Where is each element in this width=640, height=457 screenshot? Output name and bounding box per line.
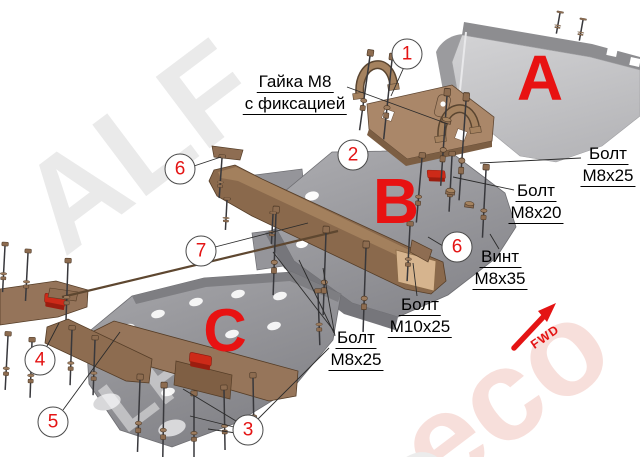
label-bolt-m8x20-line1: Болт [515,181,557,202]
label-bolt-m8x25-bottom-line2: М8х25 [328,350,383,371]
callout-6b: 6 [442,232,473,263]
callout-5: 5 [38,407,69,438]
label-nut-m8-line2: с фиксацией [243,94,347,115]
label-nut-m8: Гайка М8 с фиксацией [243,72,347,116]
diagram-stage: ALF eco co [0,0,640,457]
callout-1: 1 [392,39,423,70]
u-clamp [353,65,400,100]
label-screw-m8x35: Винт М8х35 [472,247,527,291]
label-bolt-m8x25-top-line1: Болт [587,144,629,165]
brand-logo-block [427,168,446,183]
label-bolt-m10x25: Болт М10х25 [388,295,452,339]
label-bolt-m8x20: Болт М8х20 [508,181,563,225]
panel-letter-c: C [203,301,246,361]
label-bolt-m8x25-top: Болт М8х25 [580,144,635,188]
callout-6a: 6 [165,154,196,185]
callout-4: 4 [25,345,56,376]
panel-letter-a: A [517,46,563,110]
callout-2: 2 [338,140,369,171]
label-screw-m8x35-line1: Винт [479,247,521,268]
label-nut-m8-line1: Гайка М8 [257,72,334,93]
label-bolt-m8x25-top-line2: М8х25 [580,166,635,187]
label-bolt-m8x25-bottom: Болт М8х25 [328,328,383,372]
callout-7: 7 [186,236,217,267]
panel-letter-b: B [373,169,419,233]
label-bolt-m10x25-line2: М10х25 [388,317,452,338]
label-bolt-m10x25-line1: Болт [399,295,441,316]
label-bolt-m8x25-bottom-line1: Болт [335,328,377,349]
label-screw-m8x35-line2: М8х35 [472,269,527,290]
callout-3: 3 [233,415,264,446]
label-bolt-m8x20-line2: М8х20 [508,203,563,224]
